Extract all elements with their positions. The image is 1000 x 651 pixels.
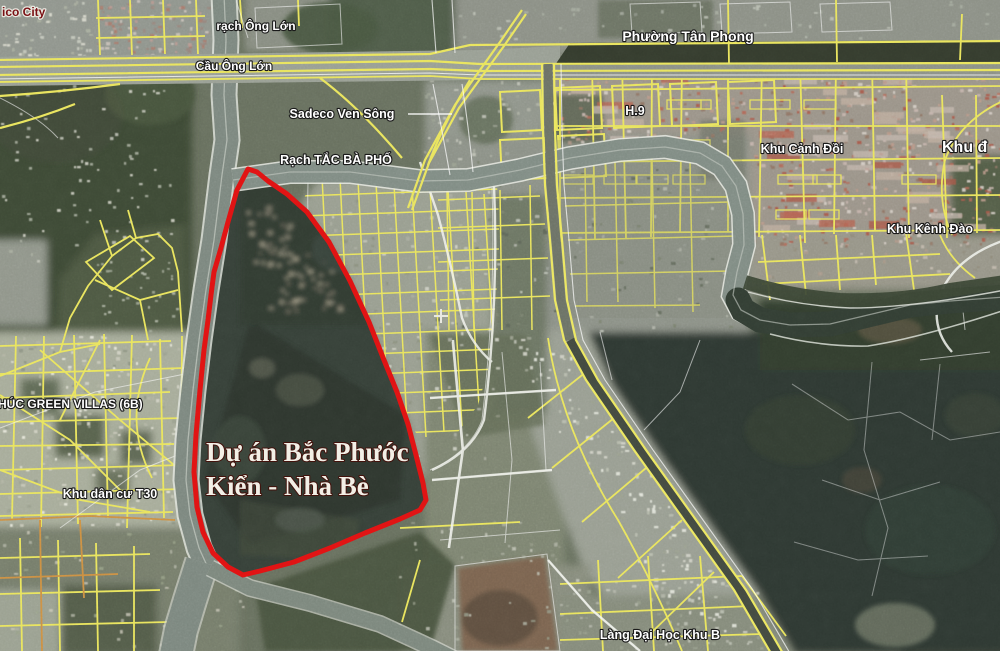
svg-text:H.9: H.9 [625,104,645,118]
svg-text:Cầu Ông Lớn: Cầu Ông Lớn [196,58,273,73]
svg-text:ico City: ico City [2,5,46,19]
svg-text:Dự án Bắc Phước: Dự án Bắc Phước [206,437,409,467]
svg-text:Làng Đại Học Khu B: Làng Đại Học Khu B [600,628,720,642]
svg-text:Sadeco Ven Sông: Sadeco Ven Sông [290,107,395,121]
svg-text:rạch Ông Lớn: rạch Ông Lớn [216,18,295,33]
svg-text:Khu Kênh Đào: Khu Kênh Đào [887,222,973,236]
svg-text:Khu Cảnh Đồi: Khu Cảnh Đồi [761,142,844,156]
svg-text:Rạch TẮC BÀ PHỐ: Rạch TẮC BÀ PHỐ [280,152,392,167]
svg-text:Khu dân cư T30: Khu dân cư T30 [63,487,158,501]
svg-text:Phường Tân Phong: Phường Tân Phong [622,28,753,44]
svg-text:Khu đ: Khu đ [942,139,988,156]
svg-text:HÚC GREEN VILLAS (6B): HÚC GREEN VILLAS (6B) [0,396,143,411]
svg-text:Kiển - Nhà Bè: Kiển - Nhà Bè [206,471,369,501]
